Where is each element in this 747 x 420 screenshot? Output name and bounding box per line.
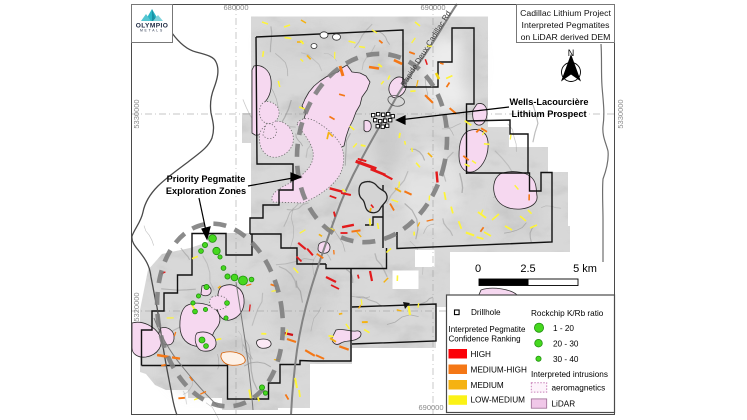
svg-text:680000: 680000 (223, 3, 248, 12)
svg-text:MEDIUM-HIGH: MEDIUM-HIGH (471, 366, 527, 375)
svg-text:METALS: METALS (140, 29, 164, 33)
svg-text:Interpreted intrusions: Interpreted intrusions (531, 370, 608, 379)
svg-text:on LiDAR derived DEM: on LiDAR derived DEM (521, 32, 611, 42)
svg-text:5330000: 5330000 (132, 99, 141, 128)
svg-text:5330000: 5330000 (616, 99, 625, 128)
svg-text:Interpreted Pegmatites: Interpreted Pegmatites (522, 20, 611, 30)
svg-text:Drillhole: Drillhole (471, 308, 501, 317)
svg-text:MEDIUM: MEDIUM (471, 381, 504, 390)
svg-text:30 - 40: 30 - 40 (553, 355, 579, 364)
svg-text:5320000: 5320000 (132, 292, 141, 321)
svg-text:Rockchip K/Rb ratio: Rockchip K/Rb ratio (531, 309, 604, 318)
svg-text:HIGH: HIGH (471, 350, 492, 359)
svg-text:Cadillac Lithium Project: Cadillac Lithium Project (520, 8, 611, 18)
svg-text:5 km: 5 km (573, 263, 597, 275)
svg-text:690000: 690000 (420, 3, 445, 12)
svg-text:LiDAR: LiDAR (552, 400, 576, 409)
svg-text:Confidence Ranking: Confidence Ranking (449, 335, 521, 344)
svg-text:Lithium Prospect: Lithium Prospect (511, 109, 586, 119)
svg-text:Exploration Zones: Exploration Zones (166, 186, 246, 196)
svg-text:20 - 30: 20 - 30 (553, 340, 579, 349)
svg-text:690000: 690000 (418, 403, 443, 412)
svg-text:LOW-MEDIUM: LOW-MEDIUM (471, 396, 526, 405)
svg-text:Wells-Lacourcière: Wells-Lacourcière (510, 97, 589, 107)
svg-text:0: 0 (475, 263, 481, 275)
svg-text:2.5: 2.5 (520, 263, 535, 275)
svg-text:1 - 20: 1 - 20 (553, 324, 574, 333)
svg-text:Interpreted Pegmatite: Interpreted Pegmatite (449, 325, 526, 334)
svg-text:aeromagnetics: aeromagnetics (552, 384, 606, 393)
svg-text:Priority Pegmatite: Priority Pegmatite (167, 174, 246, 184)
